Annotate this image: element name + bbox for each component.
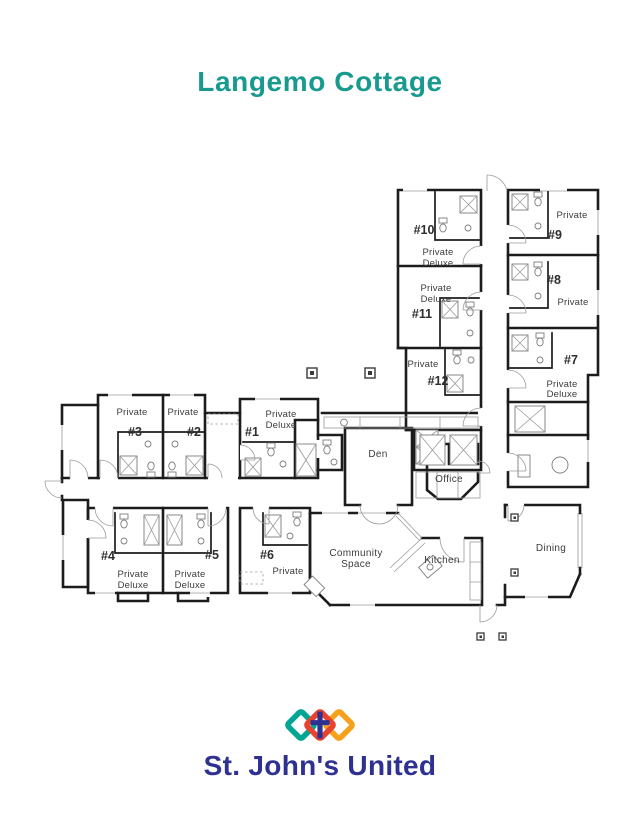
room-1-type-line2: Deluxe — [266, 420, 297, 431]
logo-mark-icon — [284, 700, 356, 750]
room-10-type-line1: Private — [423, 247, 454, 258]
window-openings — [59, 187, 602, 609]
kitchen-label: Kitchen — [424, 555, 459, 566]
room-1-number: #1 — [245, 425, 259, 439]
community-space-label-line2: Space — [341, 559, 371, 570]
room-6-number: #6 — [260, 548, 274, 562]
room-11-type-line2: Deluxe — [421, 294, 452, 305]
room-4-number: #4 — [101, 549, 115, 563]
logo-wordmark: St. John's United — [0, 750, 640, 782]
room-9-type: Private — [557, 210, 588, 221]
room-12-type: Private — [408, 359, 439, 370]
room-10-type-line2: Deluxe — [423, 258, 454, 269]
community-space-label-line1: Community — [329, 548, 382, 559]
room-2-number: #2 — [187, 425, 201, 439]
room-5-type-line2: Deluxe — [175, 580, 206, 591]
room-3-type: Private — [117, 407, 148, 418]
room-11-number: #11 — [412, 307, 432, 321]
room-8-number: #8 — [547, 273, 561, 287]
room-12-number: #12 — [428, 374, 449, 388]
room-1-type-line1: Private — [266, 409, 297, 420]
area-labels: Den Office Community Space Kitchen Dinin… — [329, 449, 566, 570]
room-11-type-line1: Private — [421, 283, 452, 294]
room-6-type: Private — [273, 566, 304, 577]
dining-label: Dining — [536, 543, 566, 554]
room-9-number: #9 — [548, 228, 562, 242]
logo: St. John's United — [0, 700, 640, 782]
room-10-number: #10 — [414, 223, 435, 237]
office-label: Office — [435, 474, 463, 485]
room-7-type-line2: Deluxe — [547, 389, 578, 400]
bathroom-fixtures — [115, 192, 552, 553]
room-4-type-line1: Private — [118, 569, 149, 580]
page: Langemo Cottage — [0, 0, 640, 829]
den-label: Den — [368, 449, 387, 460]
room-5-type-line1: Private — [175, 569, 206, 580]
room-3-number: #3 — [128, 425, 142, 439]
room-7-number: #7 — [564, 353, 578, 367]
room-8-type: Private — [558, 297, 589, 308]
room-4-type-line2: Deluxe — [118, 580, 149, 591]
walls-layer — [62, 190, 598, 605]
room-5-number: #5 — [205, 548, 219, 562]
room-2-type: Private — [168, 407, 199, 418]
